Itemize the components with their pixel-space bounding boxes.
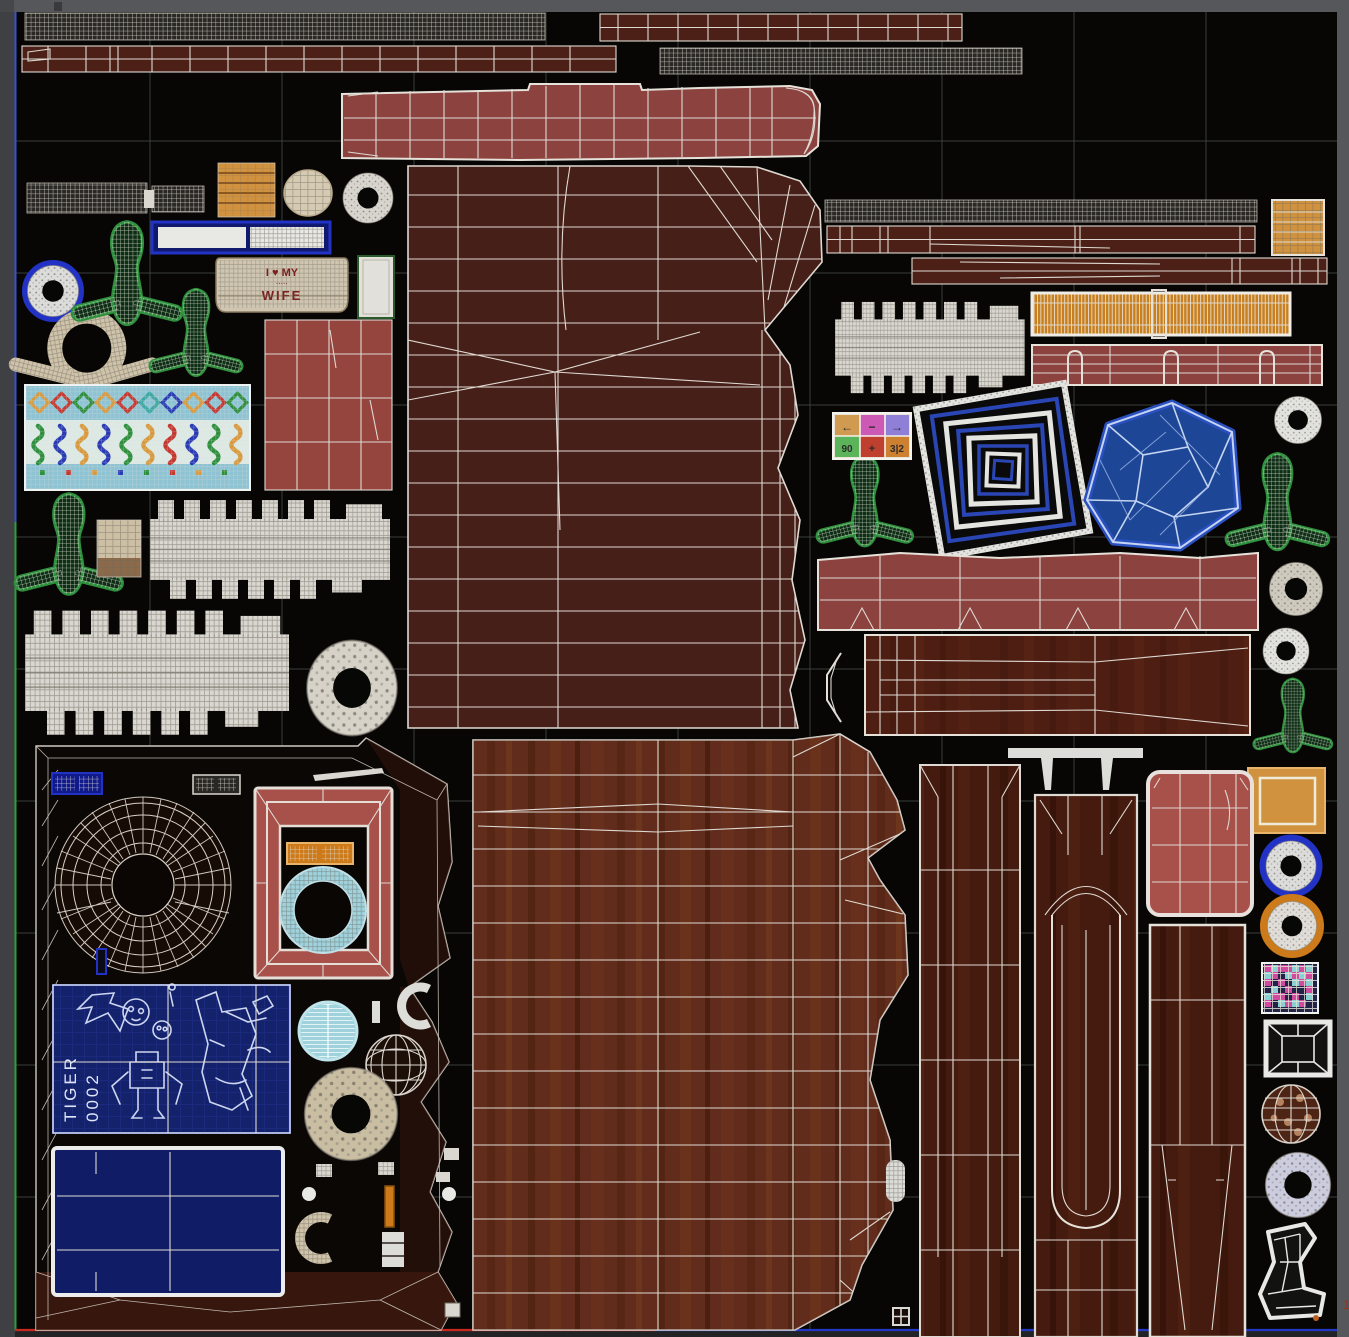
uv-editor-canvas[interactable]: 1	[0, 0, 1349, 1337]
orange-rim-ring[interactable]	[1264, 898, 1320, 954]
white-grid-badge[interactable]	[193, 775, 240, 794]
amber-grille-strip[interactable]	[1032, 290, 1290, 338]
blue-tick[interactable]	[97, 949, 106, 974]
tan-block[interactable]	[97, 520, 141, 577]
svg-text:I ♥ MY: I ♥ MY	[266, 267, 299, 279]
pink-checker-swatch[interactable]	[1262, 963, 1318, 1013]
beige-knob[interactable]	[284, 170, 332, 216]
window-left-border	[0, 12, 15, 1337]
white-torus-small[interactable]	[343, 173, 393, 223]
white-torus-c[interactable]	[1270, 563, 1323, 616]
wood-block-small[interactable]	[218, 163, 275, 217]
orange-block-right[interactable]	[1272, 200, 1324, 255]
ruler-label: 1	[1343, 1297, 1349, 1312]
white-card[interactable]	[358, 256, 394, 318]
wood-body-panel[interactable]	[460, 734, 920, 1334]
mesh-strip-row2[interactable]	[660, 48, 1022, 74]
radial-disk[interactable]	[55, 797, 231, 973]
trim-strip-row2[interactable]	[22, 46, 616, 72]
white-ring-d[interactable]	[1263, 628, 1309, 674]
svg-text:←: ←	[841, 420, 853, 434]
maroon-body-panel[interactable]	[400, 166, 830, 728]
wood-column-a[interactable]	[920, 765, 1020, 1337]
grid-icon-small[interactable]	[893, 1308, 909, 1325]
svg-text:·····: ·····	[276, 281, 288, 288]
window-corner	[0, 0, 14, 12]
ornament-pattern-block[interactable]	[25, 385, 250, 490]
svg-text:90: 90	[841, 444, 853, 455]
red-loop-strip[interactable]	[1032, 345, 1322, 385]
svg-text:0002: 0002	[83, 1072, 102, 1122]
orange-panel-right[interactable]	[1248, 768, 1325, 833]
mesh-strip-top-left[interactable]	[25, 13, 545, 40]
bottom-sliver	[15, 1331, 1337, 1337]
red-grid-block[interactable]	[265, 320, 392, 490]
mug-wrap-label[interactable]: I ♥ MY ····· WIFE	[216, 258, 348, 312]
red-fold-strip[interactable]	[818, 553, 1258, 630]
square-spiral-target[interactable]	[916, 383, 1090, 557]
blueprint-plain[interactable]	[53, 1148, 283, 1295]
trim-strip-right-b[interactable]	[912, 258, 1327, 284]
uv-editor-screen: 1	[0, 0, 1349, 1337]
window-top-border	[0, 0, 1349, 12]
arrow-pad-widget[interactable]: ← − → 90 + 3|2	[833, 413, 911, 459]
svg-text:+: +	[869, 443, 875, 455]
blue-label-strip[interactable]	[152, 222, 330, 253]
blue-rim-ring[interactable]	[1263, 838, 1319, 894]
cyan-lined-disc[interactable]	[299, 1002, 357, 1060]
wood-plank[interactable]	[865, 635, 1250, 735]
trim-strip-right-a[interactable]	[827, 226, 1255, 253]
svg-text:−: −	[868, 420, 875, 434]
blue-grid-badge[interactable]	[52, 773, 102, 794]
wood-column-c[interactable]	[1150, 925, 1245, 1337]
white-torus-big[interactable]	[307, 641, 397, 736]
orange-dot-tiny	[1313, 1315, 1319, 1321]
lavender-torus[interactable]	[1266, 1153, 1331, 1218]
blueprint-sketch[interactable]: TIGER 0002	[53, 984, 290, 1133]
mesh-strip-right[interactable]	[825, 200, 1257, 222]
beige-torus[interactable]	[305, 1068, 398, 1161]
orange-grid-badge[interactable]	[287, 843, 353, 864]
svg-text:3|2: 3|2	[890, 444, 904, 455]
blue-gem[interactable]	[1087, 403, 1238, 548]
window-right-border	[1337, 12, 1349, 1337]
white-capsule-small[interactable]	[886, 1160, 905, 1202]
white-ibeam[interactable]	[382, 1232, 404, 1267]
red-picture-frame[interactable]	[255, 788, 392, 978]
white-bar-small[interactable]	[372, 1001, 380, 1023]
speckle-ring-a[interactable]	[1275, 397, 1322, 444]
wood-column-b[interactable]	[1035, 795, 1137, 1337]
svg-text:→: →	[891, 420, 903, 434]
wire-box[interactable]	[1266, 1022, 1330, 1075]
svg-text:TIGER: TIGER	[61, 1055, 80, 1122]
trim-strip-top-right[interactable]	[600, 14, 962, 41]
red-bench-bar[interactable]	[342, 84, 820, 160]
red-rounded-panel[interactable]	[1148, 772, 1252, 915]
top-border-tick	[54, 2, 62, 11]
white-dot[interactable]	[302, 1187, 316, 1201]
orange-stick[interactable]	[385, 1186, 394, 1227]
mesh-strip-small[interactable]	[27, 183, 204, 213]
choco-ball[interactable]	[1262, 1085, 1320, 1143]
